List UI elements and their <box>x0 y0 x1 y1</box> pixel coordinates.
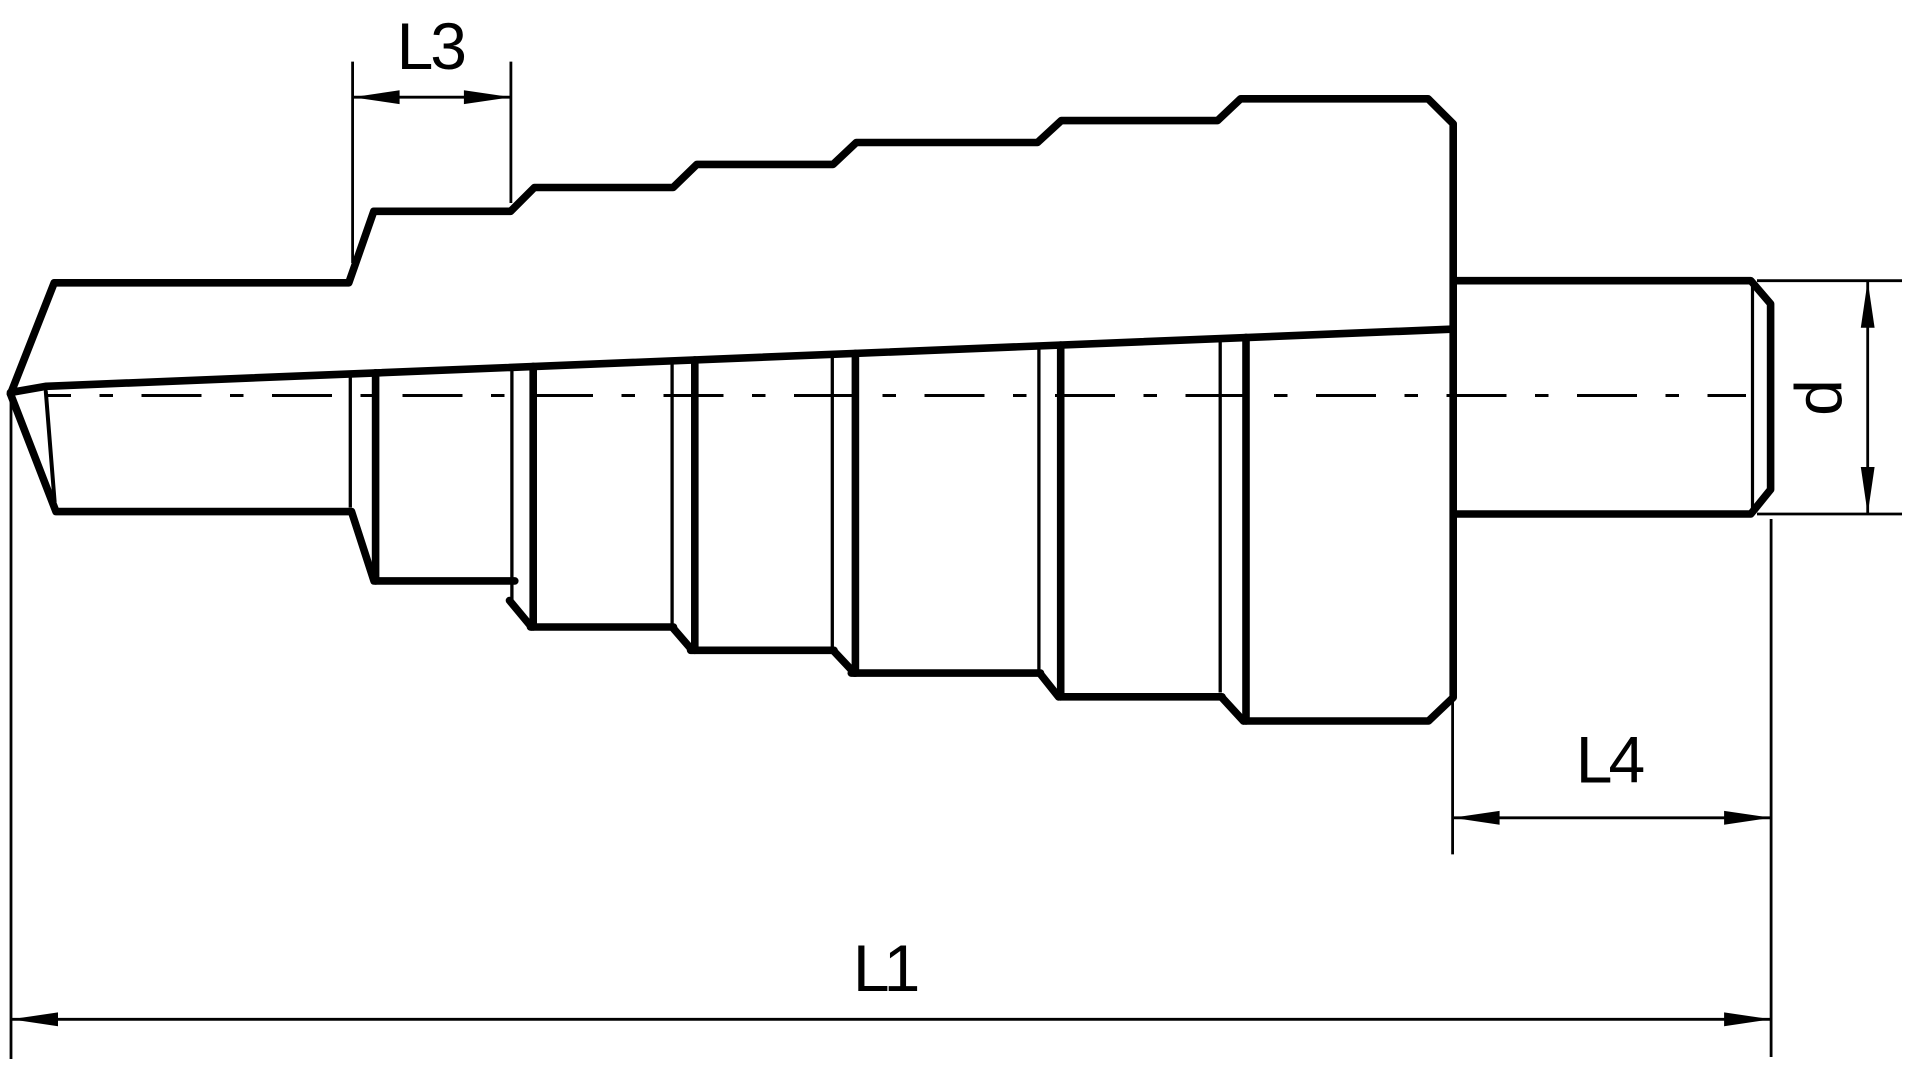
svg-text:d: d <box>1782 379 1856 416</box>
svg-text:L3: L3 <box>397 9 465 83</box>
svg-text:L4: L4 <box>1576 723 1644 797</box>
svg-text:L1: L1 <box>853 931 918 1005</box>
